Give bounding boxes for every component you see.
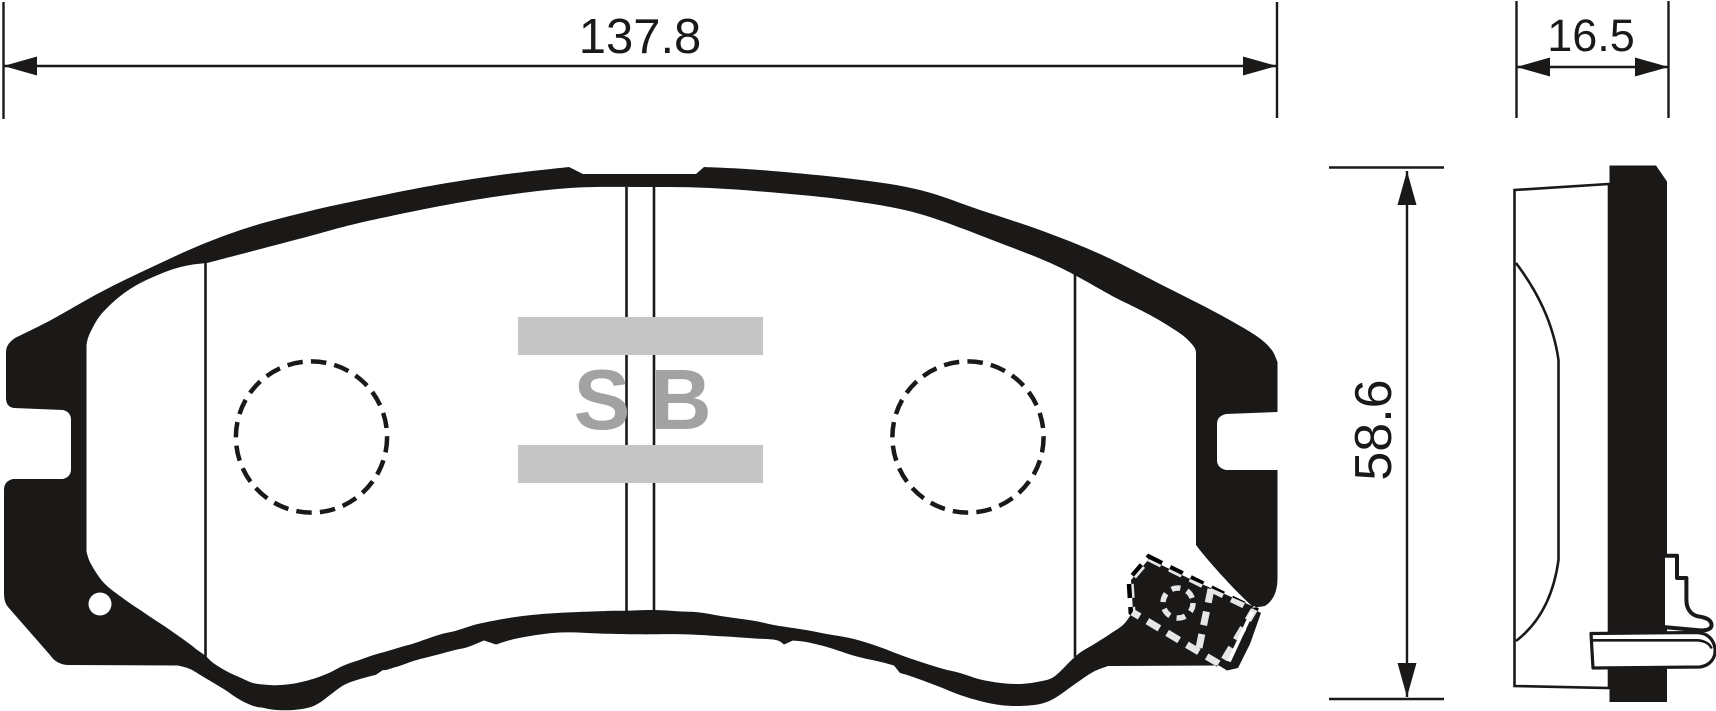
svg-text:58.6: 58.6 <box>1345 379 1403 480</box>
svg-text:137.8: 137.8 <box>579 10 702 64</box>
svg-text:S: S <box>574 353 631 448</box>
svg-text:16.5: 16.5 <box>1547 10 1635 61</box>
svg-text:B: B <box>650 353 711 448</box>
